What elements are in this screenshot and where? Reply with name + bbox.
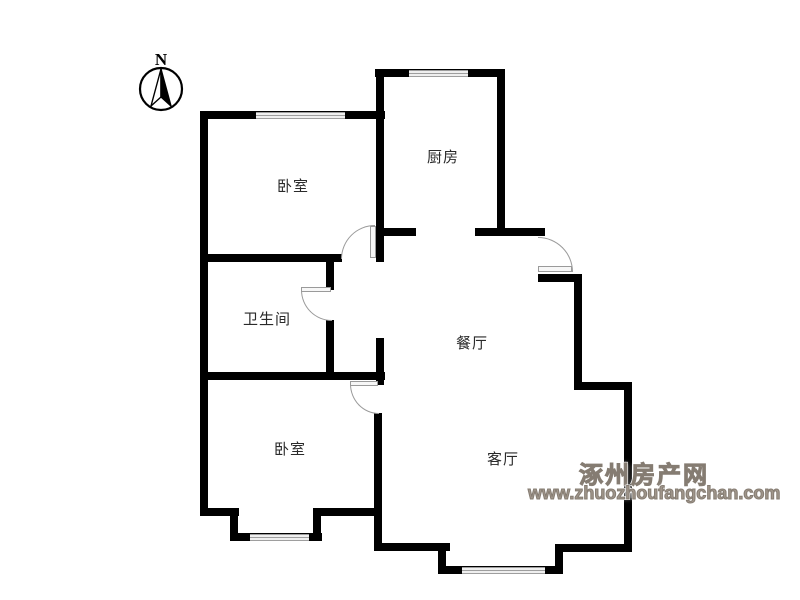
- door-leaf: [538, 266, 572, 272]
- room-label-kitchen: 厨房: [413, 146, 473, 167]
- wall: [438, 543, 446, 574]
- room-label-bedroom-top: 卧室: [263, 175, 323, 196]
- wall: [313, 508, 321, 541]
- room-label-dining-room: 餐厅: [442, 332, 502, 353]
- compass-north-icon: N: [136, 48, 186, 114]
- wall: [200, 111, 208, 516]
- wall: [376, 69, 384, 262]
- window: [256, 112, 345, 119]
- window: [409, 70, 468, 77]
- wall: [200, 372, 385, 380]
- wall: [374, 413, 382, 551]
- room-label-bedroom-bottom: 卧室: [260, 438, 320, 459]
- wall: [200, 254, 342, 262]
- door-leaf: [370, 226, 376, 258]
- door-leaf: [301, 287, 331, 292]
- floor-plan: N 卧室 厨房 卫生间 餐厅 卧室 客厅: [0, 0, 800, 600]
- wall: [326, 320, 334, 380]
- room-label-bathroom: 卫生间: [227, 308, 307, 329]
- door-leaf: [350, 381, 378, 386]
- door-arc: [350, 384, 379, 414]
- wall: [313, 508, 380, 516]
- window: [462, 567, 545, 574]
- wall: [376, 338, 384, 385]
- wall: [497, 69, 505, 236]
- wall: [326, 254, 334, 290]
- wall: [555, 544, 632, 552]
- svg-text:N: N: [155, 50, 168, 69]
- wall: [574, 274, 582, 390]
- wall: [475, 228, 545, 236]
- room-label-living-room: 客厅: [473, 448, 533, 469]
- wall: [230, 508, 238, 541]
- window: [250, 534, 309, 541]
- wall: [555, 544, 563, 574]
- watermark-site-url: www.zhuozhoufangchan.com: [528, 483, 768, 504]
